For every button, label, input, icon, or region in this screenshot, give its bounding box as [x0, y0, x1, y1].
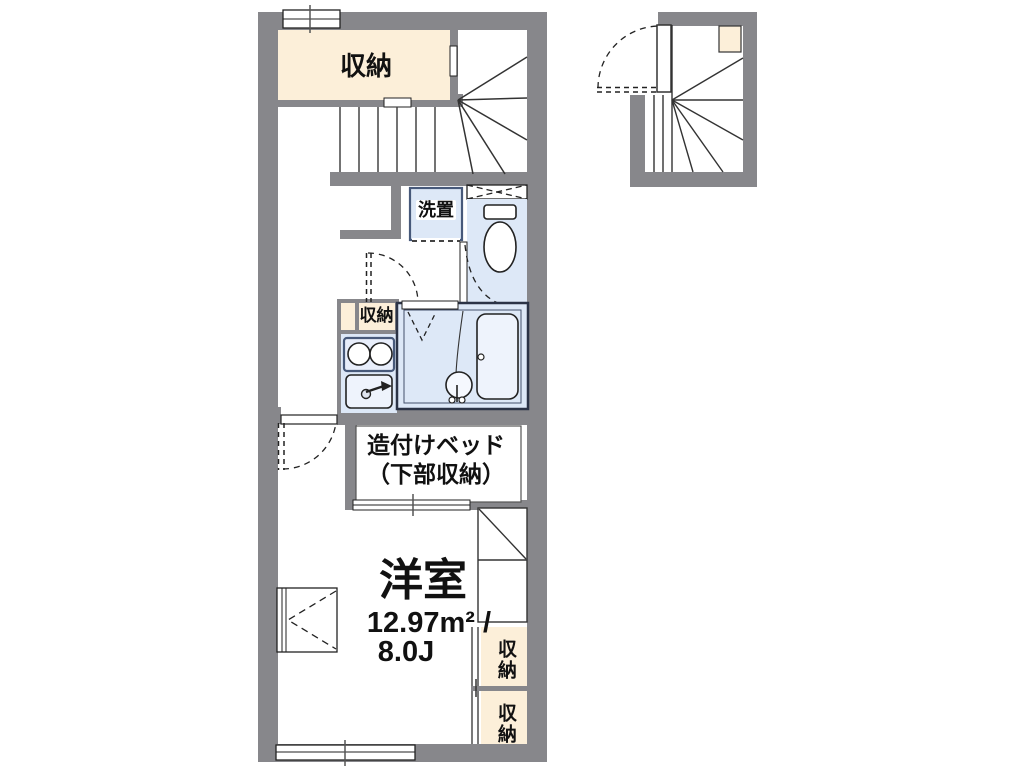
washer-label-text: 洗置	[416, 200, 456, 220]
room-area-jo-label: 8.0J	[340, 636, 472, 669]
window-toilet-vent	[467, 185, 527, 199]
entry-door-open	[597, 26, 658, 92]
room-name-label: 洋室	[348, 556, 498, 607]
toilet-door-panel	[460, 242, 467, 303]
winder-stairs	[458, 57, 527, 174]
storage-top-label: 収納	[318, 52, 414, 82]
entry-meter-box	[719, 26, 741, 52]
storage-right-upper-label: 収納	[494, 632, 516, 688]
stove-icon	[344, 338, 394, 371]
staircase	[340, 107, 435, 172]
storage-right-lower-label: 収納	[494, 696, 516, 752]
storage-small-label: 収納	[356, 306, 397, 326]
floor-plan: 収納 洗置 収納 造付けベッド （下部収納） 洋室 12.97m² / 8.0J…	[0, 0, 1017, 772]
toilet-icon	[484, 205, 516, 272]
window-bottom	[276, 740, 415, 766]
entry-door-panel	[657, 25, 671, 92]
bath-window	[402, 301, 458, 309]
entrance-door	[279, 415, 338, 470]
bed-label-line2: （下部収納）	[345, 461, 527, 487]
washer-label: 洗置	[409, 200, 463, 221]
kitchen-sink-icon	[346, 375, 392, 408]
window-casement-left	[277, 588, 337, 652]
entry-stairs-diagram	[597, 12, 757, 187]
bathroom	[397, 301, 528, 409]
bed-label-line1: 造付けベッド	[345, 432, 527, 458]
washroom-door	[367, 253, 419, 303]
storage-small-strip	[341, 303, 355, 330]
